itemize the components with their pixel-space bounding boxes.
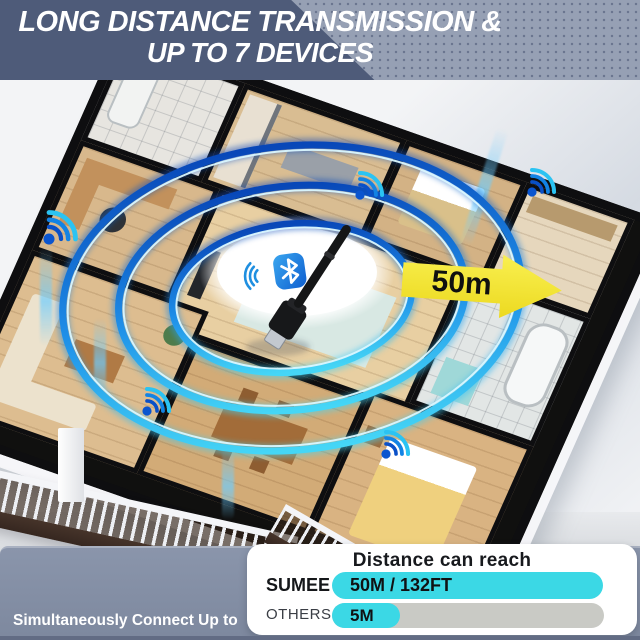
banner-title-line1: LONG DISTANCE TRANSMISSION & bbox=[0, 6, 520, 38]
tv-cabinet bbox=[187, 248, 221, 299]
banner-title: LONG DISTANCE TRANSMISSION & UP TO 7 DEV… bbox=[0, 6, 520, 69]
light-beam bbox=[94, 318, 106, 400]
furniture bbox=[281, 144, 359, 191]
distance-compare-card: Distance can reach SUMEE 50M / 132FT OTH… bbox=[247, 544, 637, 635]
compare-card-title: Distance can reach bbox=[247, 550, 637, 572]
plant bbox=[160, 322, 189, 349]
brand-range-pill: 50M / 132FT bbox=[332, 572, 603, 599]
chair bbox=[249, 456, 270, 474]
rug bbox=[430, 357, 484, 406]
light-beam bbox=[222, 446, 234, 520]
sofa bbox=[0, 370, 97, 431]
chair bbox=[238, 388, 259, 406]
product-infographic: 50m LONG DISTANCE TRANSMISSION & UP TO 7… bbox=[0, 0, 640, 640]
info-bar: Simultaneously Connect Up to 7 Devices, … bbox=[0, 546, 640, 640]
info-text-line: Simultaneously Connect Up to bbox=[13, 608, 238, 633]
others-range-pill: 5M bbox=[332, 603, 400, 628]
info-text: Simultaneously Connect Up to 7 Devices, … bbox=[13, 558, 238, 640]
banner-title-line2: UP TO 7 DEVICES bbox=[0, 38, 520, 69]
light-beam bbox=[40, 246, 52, 346]
nightstand bbox=[361, 425, 387, 448]
office-chair bbox=[95, 204, 130, 236]
header-banner: LONG DISTANCE TRANSMISSION & UP TO 7 DEV… bbox=[0, 0, 640, 80]
balcony-pillar bbox=[58, 428, 84, 502]
bottom-edge-strip bbox=[0, 636, 640, 640]
brand-label: SUMEE bbox=[266, 575, 330, 596]
furniture bbox=[526, 196, 618, 242]
others-range-track: 5M bbox=[332, 603, 604, 628]
others-label: OTHERS bbox=[266, 606, 332, 623]
bathtub bbox=[498, 319, 575, 413]
rug bbox=[234, 252, 397, 368]
chair bbox=[274, 400, 295, 418]
